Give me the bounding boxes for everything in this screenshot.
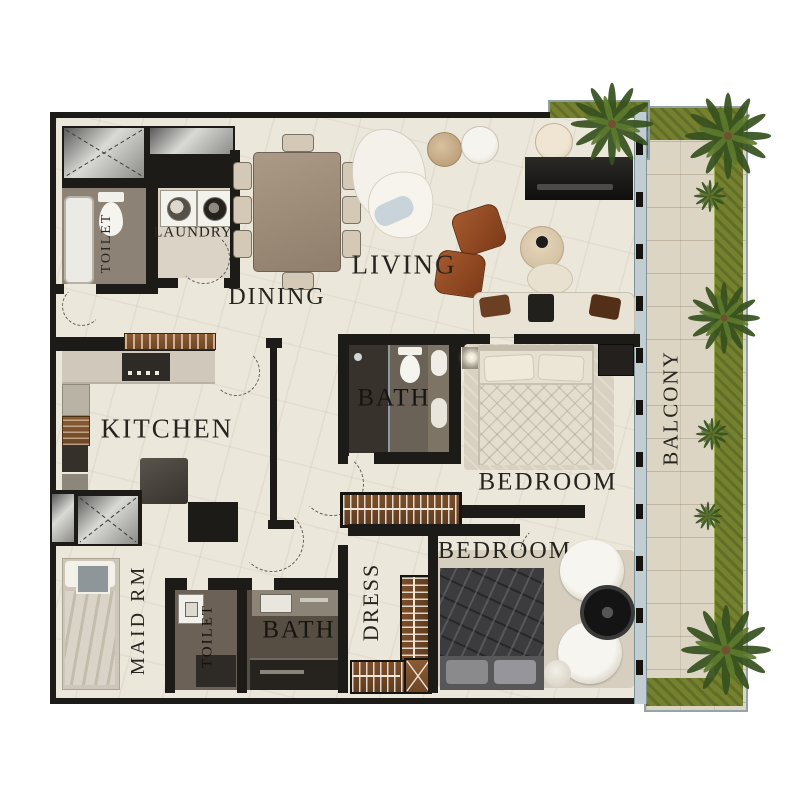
window-mullion bbox=[636, 192, 643, 207]
cabinet-icon bbox=[62, 446, 88, 472]
wall-dress-left bbox=[338, 545, 348, 693]
pillow-icon bbox=[537, 354, 584, 382]
pillow-icon bbox=[483, 354, 534, 383]
door-swing-icon bbox=[240, 508, 304, 572]
stool-icon bbox=[544, 660, 571, 687]
toilet-icon bbox=[98, 192, 124, 202]
wall-bedroom-lower-top bbox=[348, 524, 520, 536]
dining-label: DINING bbox=[228, 285, 325, 309]
toilet-bowl bbox=[400, 355, 420, 383]
mirror-closet-icon bbox=[64, 128, 144, 178]
bath-lower-label: BATH bbox=[262, 618, 335, 643]
wardrobe-icon bbox=[340, 492, 462, 528]
mirror-closet-icon bbox=[78, 496, 138, 544]
maid-room-label: MAID RM bbox=[128, 565, 148, 675]
bath-main-label: BATH bbox=[357, 386, 430, 411]
dining-chair-icon bbox=[233, 230, 252, 258]
bathtub-icon bbox=[64, 196, 94, 284]
wall-toilet-laundry bbox=[146, 154, 158, 290]
stove-icon bbox=[122, 353, 170, 381]
dining-chair-icon bbox=[233, 162, 252, 190]
round-chair-icon bbox=[461, 126, 499, 164]
palm-tree-icon bbox=[692, 178, 728, 214]
window-mullion bbox=[636, 296, 643, 311]
fridge-icon bbox=[62, 384, 90, 416]
coffee-table-icon bbox=[527, 263, 573, 295]
corridor-wall-cap bbox=[266, 338, 282, 348]
cabinet-icon bbox=[62, 416, 90, 446]
bed-icon bbox=[478, 345, 594, 465]
washer-icon bbox=[160, 190, 197, 227]
blanket bbox=[65, 591, 115, 685]
side-table-icon bbox=[528, 294, 554, 322]
apartment-floor-plan: BALCONY TOILET bbox=[0, 0, 800, 800]
wall-toilet-bath-divider bbox=[237, 590, 247, 693]
picture-frame-icon bbox=[76, 564, 110, 594]
wall-toilet-bottom2 bbox=[96, 284, 158, 294]
kitchen-south-counter bbox=[188, 502, 238, 542]
dress-label: DRESS bbox=[360, 563, 382, 641]
round-table-icon bbox=[427, 132, 462, 167]
window-mullion bbox=[636, 660, 643, 675]
door-swing-icon bbox=[178, 232, 230, 284]
palm-tree-icon bbox=[684, 278, 764, 358]
dining-chair-icon bbox=[233, 196, 252, 224]
duvet bbox=[440, 568, 544, 656]
wardrobe-icon bbox=[400, 575, 430, 665]
sink-icon bbox=[431, 398, 447, 428]
wall-bath-left bbox=[338, 334, 349, 456]
sofa-pillow-icon bbox=[479, 294, 511, 318]
mirror-closet-icon bbox=[150, 128, 233, 154]
wall-bedroom-main-bottom bbox=[449, 505, 585, 518]
window-mullion bbox=[636, 504, 643, 519]
toilet-upper-label: TOILET bbox=[100, 213, 114, 274]
wall-bedroom-lower-left bbox=[428, 535, 438, 693]
wall-maid-right bbox=[165, 578, 175, 693]
wall-toilet-bottom bbox=[50, 284, 64, 294]
kitchen-island-icon bbox=[140, 458, 188, 504]
window-mullion bbox=[636, 348, 643, 363]
palm-tree-icon bbox=[694, 416, 730, 452]
living-label: LIVING bbox=[352, 252, 457, 279]
wall-lower-top3 bbox=[274, 578, 344, 590]
closet-x-mark bbox=[78, 496, 138, 544]
palm-tree-icon bbox=[676, 600, 776, 700]
shower-tub-icon bbox=[250, 658, 340, 690]
floor-plan-image: BALCONY TOILET bbox=[0, 0, 800, 800]
pillow-icon bbox=[446, 660, 488, 684]
wall-bath-right bbox=[449, 334, 461, 464]
pillow-icon bbox=[494, 660, 536, 684]
sink-icon bbox=[260, 594, 292, 613]
door-swing-icon bbox=[62, 286, 102, 326]
bath-counter-icon bbox=[252, 590, 340, 616]
window-mullion bbox=[636, 556, 643, 571]
palm-tree-icon bbox=[680, 88, 776, 184]
window-mullion bbox=[636, 400, 643, 415]
corridor-wall bbox=[270, 348, 277, 520]
dryer-icon bbox=[197, 190, 232, 227]
palm-tree-icon bbox=[566, 78, 658, 170]
wall-bath-bottom-b bbox=[374, 452, 461, 464]
wall-lower-top bbox=[165, 578, 187, 590]
bedroom-main-label: BEDROOM bbox=[478, 470, 617, 495]
wall-bath-bottom-a bbox=[338, 452, 348, 464]
window-mullion bbox=[636, 244, 643, 259]
dining-table-icon bbox=[253, 152, 341, 272]
wardrobe-icon bbox=[350, 660, 406, 694]
duvet bbox=[480, 383, 592, 465]
bedroom-lower-label: BEDROOM bbox=[438, 539, 572, 563]
sink-icon bbox=[431, 350, 447, 376]
window-mullion bbox=[636, 608, 643, 623]
wall-lower-top2 bbox=[208, 578, 252, 590]
mirror-closet-icon bbox=[52, 494, 74, 542]
spice-shelf-icon bbox=[124, 333, 216, 350]
palm-tree-icon bbox=[692, 500, 724, 532]
dresser-icon bbox=[598, 344, 634, 376]
decor-icon bbox=[536, 236, 548, 248]
kitchen-label: KITCHEN bbox=[101, 416, 233, 443]
toilet-lower-label: TOILET bbox=[201, 604, 216, 668]
toilet-icon bbox=[398, 347, 422, 355]
closet-x-mark bbox=[64, 128, 144, 178]
bed-icon bbox=[440, 568, 544, 690]
window-mullion bbox=[636, 452, 643, 467]
lamp-icon bbox=[466, 352, 477, 363]
wall-laundry-bottom bbox=[158, 278, 178, 288]
round-table-icon bbox=[580, 585, 635, 640]
door-swing-icon bbox=[212, 348, 260, 396]
dining-chair-icon bbox=[282, 134, 314, 152]
balcony-label: BALCONY bbox=[661, 350, 682, 466]
